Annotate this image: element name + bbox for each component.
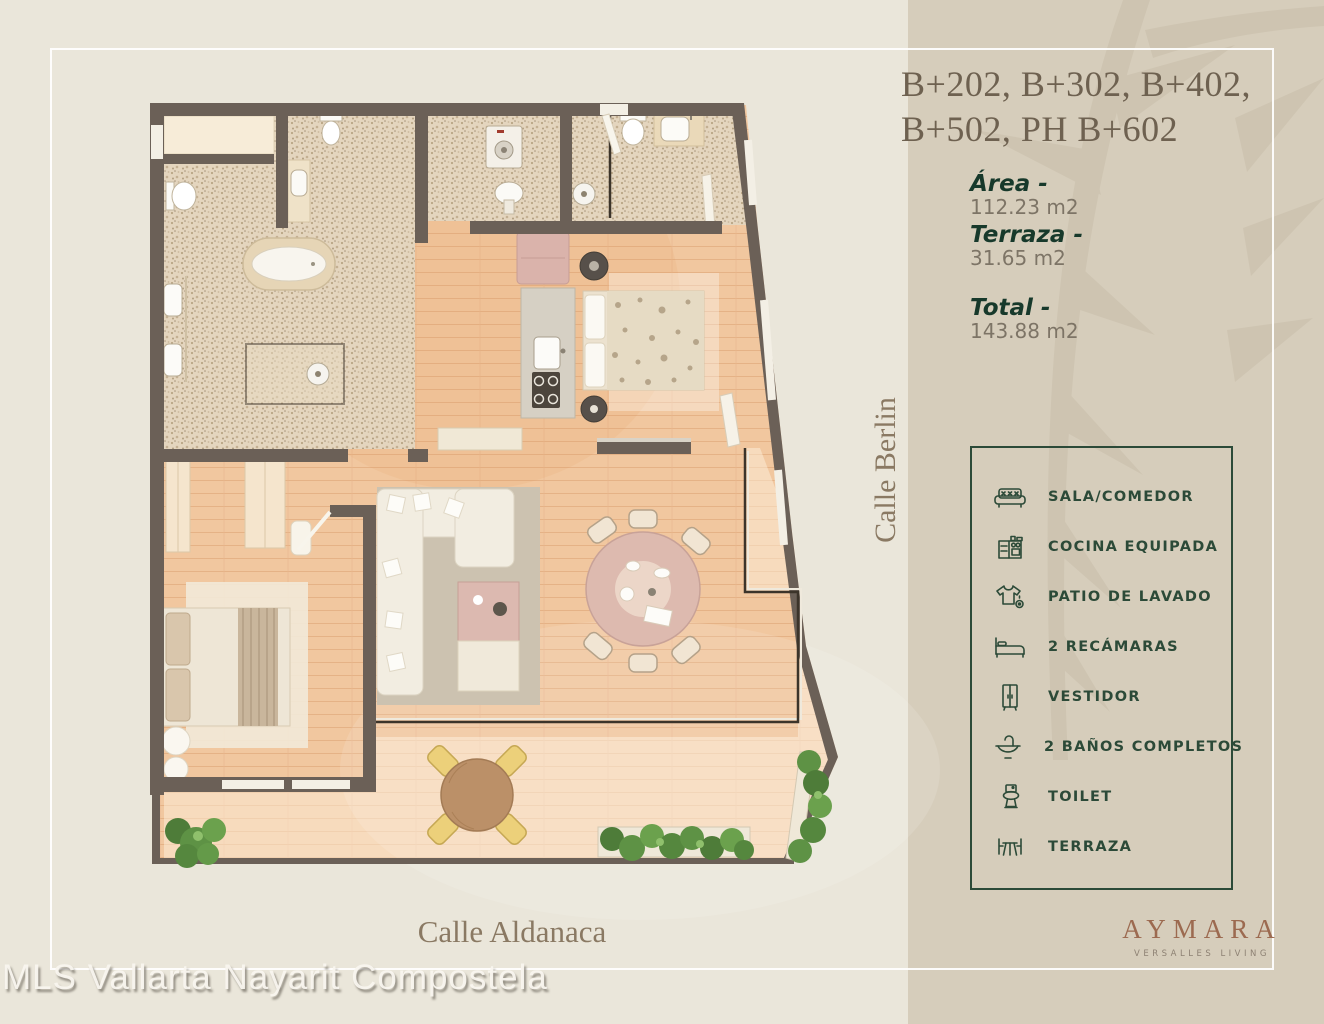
terrace-table-icon xyxy=(992,835,1028,859)
area-summary: Área - 112.23 m2 Terraza - 31.65 m2 Tota… xyxy=(970,170,1230,347)
legend-row-recamaras: 2 RECÁMARAS xyxy=(972,622,1231,672)
terrace-label: Terraza - xyxy=(970,223,1230,247)
total-label: Total - xyxy=(970,296,1230,320)
legend-row-cocina: COCINA EQUIPADA xyxy=(972,522,1231,572)
amenities-legend: SALA/COMEDOR COCINA EQUIPADA PATI xyxy=(970,446,1233,890)
unit-numbers-line2: B+502, PH B+602 xyxy=(901,107,1291,152)
area-label: Área - xyxy=(970,172,1230,196)
street-label-calle-aldanaca: Calle Aldanaca xyxy=(418,914,607,950)
brand-tagline: VERSALLES LIVING xyxy=(1122,949,1282,959)
legend-label: 2 BAÑOS COMPLETOS xyxy=(1044,739,1243,755)
legend-row-vestidor: VESTIDOR xyxy=(972,672,1231,722)
legend-row-sala: SALA/COMEDOR xyxy=(972,472,1231,522)
unit-numbers-line1: B+202, B+302, B+402, xyxy=(901,62,1291,107)
area-value: 112.23 m2 xyxy=(970,196,1230,219)
street-label-calle-berlin: Calle Berlin xyxy=(869,397,903,543)
bed-icon xyxy=(992,634,1028,660)
brand-name: AYMARA xyxy=(1122,914,1282,945)
legend-label: TOILET xyxy=(1048,789,1112,805)
toilet-icon xyxy=(992,782,1028,812)
legend-label: 2 RECÁMARAS xyxy=(1048,639,1179,655)
legend-row-terraza: TERRAZA xyxy=(972,822,1231,872)
legend-label: TERRAZA xyxy=(1048,839,1132,855)
unit-numbers-title: B+202, B+302, B+402, B+502, PH B+602 xyxy=(901,62,1291,153)
terrace-value: 31.65 m2 xyxy=(970,247,1230,270)
wardrobe-icon xyxy=(992,682,1028,712)
legend-row-toilet: TOILET xyxy=(972,772,1231,822)
legend-label: PATIO DE LAVADO xyxy=(1048,589,1212,605)
legend-label: COCINA EQUIPADA xyxy=(1048,539,1218,555)
legend-row-banos: 2 BAÑOS COMPLETOS xyxy=(972,722,1231,772)
brand-logo: AYMARA VERSALLES LIVING xyxy=(1122,914,1282,959)
laundry-icon xyxy=(992,582,1028,612)
kitchen-icon xyxy=(992,532,1028,562)
sink-icon xyxy=(992,733,1024,761)
legend-label: VESTIDOR xyxy=(1048,689,1141,705)
total-value: 143.88 m2 xyxy=(970,320,1230,343)
mls-watermark: MLS Vallarta Nayarit Compostela xyxy=(2,958,548,998)
sofa-icon xyxy=(992,484,1028,510)
legend-row-lavado: PATIO DE LAVADO xyxy=(972,572,1231,622)
legend-label: SALA/COMEDOR xyxy=(1048,489,1194,505)
